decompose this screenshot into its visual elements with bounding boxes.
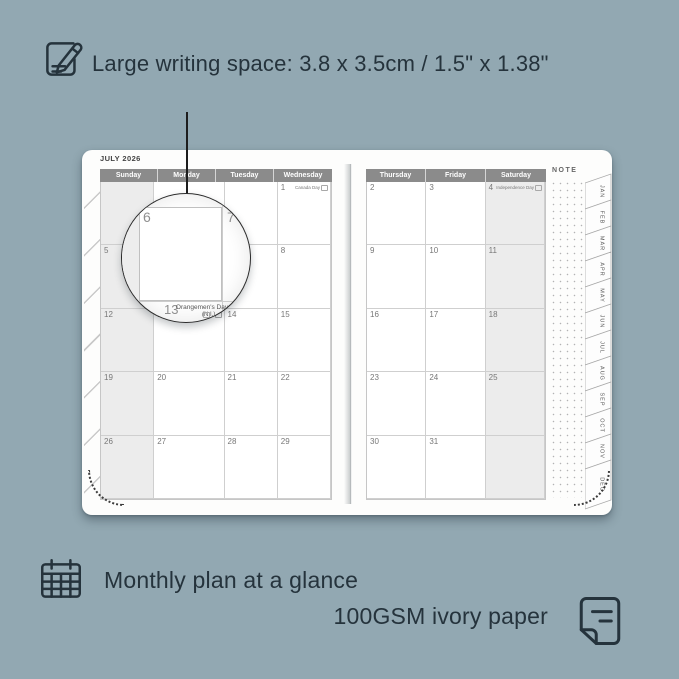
day-number: 18 [489,311,498,319]
lens-day-14: 14 [225,313,234,322]
day-number: 20 [157,374,166,382]
calendar-cell: 31 [426,436,485,499]
month-tab-label: NOV [599,444,605,459]
calendar-cell: 15 [278,309,331,372]
day-header: Wednesday [274,169,332,182]
day-number: 15 [281,311,290,319]
calendar-cell: 10 [426,245,485,308]
writing-space-box [139,207,222,301]
spine-fold [344,164,357,504]
month-tab-label: OCT [599,418,605,433]
calendar-cell: 28 [225,436,278,499]
calendar-cell: 29 [278,436,331,499]
day-number: 17 [429,311,438,319]
day-number: 1 [281,184,285,192]
month-tab-label: SEP [599,392,605,406]
day-number: 11 [489,247,497,255]
day-number: 3 [429,184,433,192]
day-number: 29 [281,438,290,446]
magnifier-lens: 6 7 13 Orangemen's Day (N.I.) 14 [121,193,251,323]
day-number: 25 [489,374,498,382]
right-page-day-headers: ThursdayFridaySaturday [366,169,546,182]
month-tab-label: JUN [599,315,605,329]
day-number: 31 [429,438,438,446]
day-number: 9 [370,247,374,255]
calendar-cell: 18 [486,309,545,372]
calendar-cell: 16 [367,309,426,372]
calendar-cell: 24 [426,372,485,435]
holiday-label: Independence Day [496,185,542,191]
calendar-cell: 1Canada Day [278,182,331,245]
calendar-cell: 4Independence Day [486,182,545,245]
month-tabs: JANFEBMARAPRMAYJUNJULAUGSEPOCTNOVDEC [585,170,612,516]
paper-icon [570,591,630,651]
day-number: 21 [228,374,237,382]
day-number: 12 [104,311,113,319]
day-number: 27 [157,438,166,446]
day-header: Thursday [366,169,426,182]
day-header: Saturday [486,169,546,182]
calendar-cell: 9 [367,245,426,308]
lens-grid-line-vertical [222,194,223,322]
lens-grid-line-horizontal [122,301,250,302]
calendar-cell: 25 [486,372,545,435]
lens-holiday-line1: Orangemen's Day [152,304,251,311]
holiday-flag-icon [535,185,542,191]
day-number: 30 [370,438,379,446]
day-number: 5 [104,247,108,255]
day-number: 19 [104,374,113,382]
bottom-left-annotation-text: Monthly plan at a glance [104,567,358,594]
month-tab-label: AUG [599,366,605,381]
calendar-cell: 21 [225,372,278,435]
month-tab-label: APR [599,262,605,276]
left-page-day-headers: SundayMondayTuesdayWednesday [100,169,332,182]
day-header: Tuesday [216,169,274,182]
day-number: 26 [104,438,113,446]
lens-shaded-column [122,194,139,322]
day-number: 24 [429,374,438,382]
month-title: JULY 2026 [100,154,141,163]
pointer-line [186,112,188,196]
day-header: Sunday [100,169,158,182]
holiday-flag-icon [203,312,210,318]
lens-day-7: 7 [227,209,235,225]
day-number: 23 [370,374,379,382]
holiday-flag-icon [321,185,328,191]
month-tab-label: FEB [599,211,605,225]
page-edge-hatching [84,162,100,504]
right-page-calendar-grid: 234Independence Day910111617182324253031 [366,182,546,500]
calendar-cell: 17 [426,309,485,372]
calendar-cell: 27 [154,436,224,499]
calendar-cell: 2 [367,182,426,245]
calendar-cell: 3 [426,182,485,245]
calendar-cell: 30 [367,436,426,499]
day-header: Friday [426,169,486,182]
day-number: 8 [281,247,285,255]
day-number: 16 [370,311,379,319]
calendar-cell [486,436,545,499]
calendar-cell: 20 [154,372,224,435]
day-number: 28 [228,438,237,446]
calendar-cell: 11 [486,245,545,308]
day-number: 10 [429,247,438,255]
calendar-cell: 22 [278,372,331,435]
bottom-right-annotation-text: 100GSM ivory paper [200,603,548,630]
month-tab-label: MAY [599,288,605,303]
calendar-grid-icon [36,555,86,605]
month-tab-label: JUL [599,341,605,354]
calendar-cell: 19 [101,372,154,435]
calendar-cell: 8 [278,245,331,308]
note-column-label: NOTE [552,167,577,174]
day-number: 22 [281,374,290,382]
calendar-cell: 23 [367,372,426,435]
month-tab-label: MAR [599,236,605,251]
top-annotation-text: Large writing space: 3.8 x 3.5cm / 1.5" … [92,51,549,77]
lens-day-6: 6 [143,209,151,225]
holiday-label: Canada Day [295,185,328,191]
day-number: 2 [370,184,374,192]
pencil-note-icon [38,34,88,84]
month-tab-label: JAN [599,185,605,198]
day-number: 4 [489,184,493,192]
